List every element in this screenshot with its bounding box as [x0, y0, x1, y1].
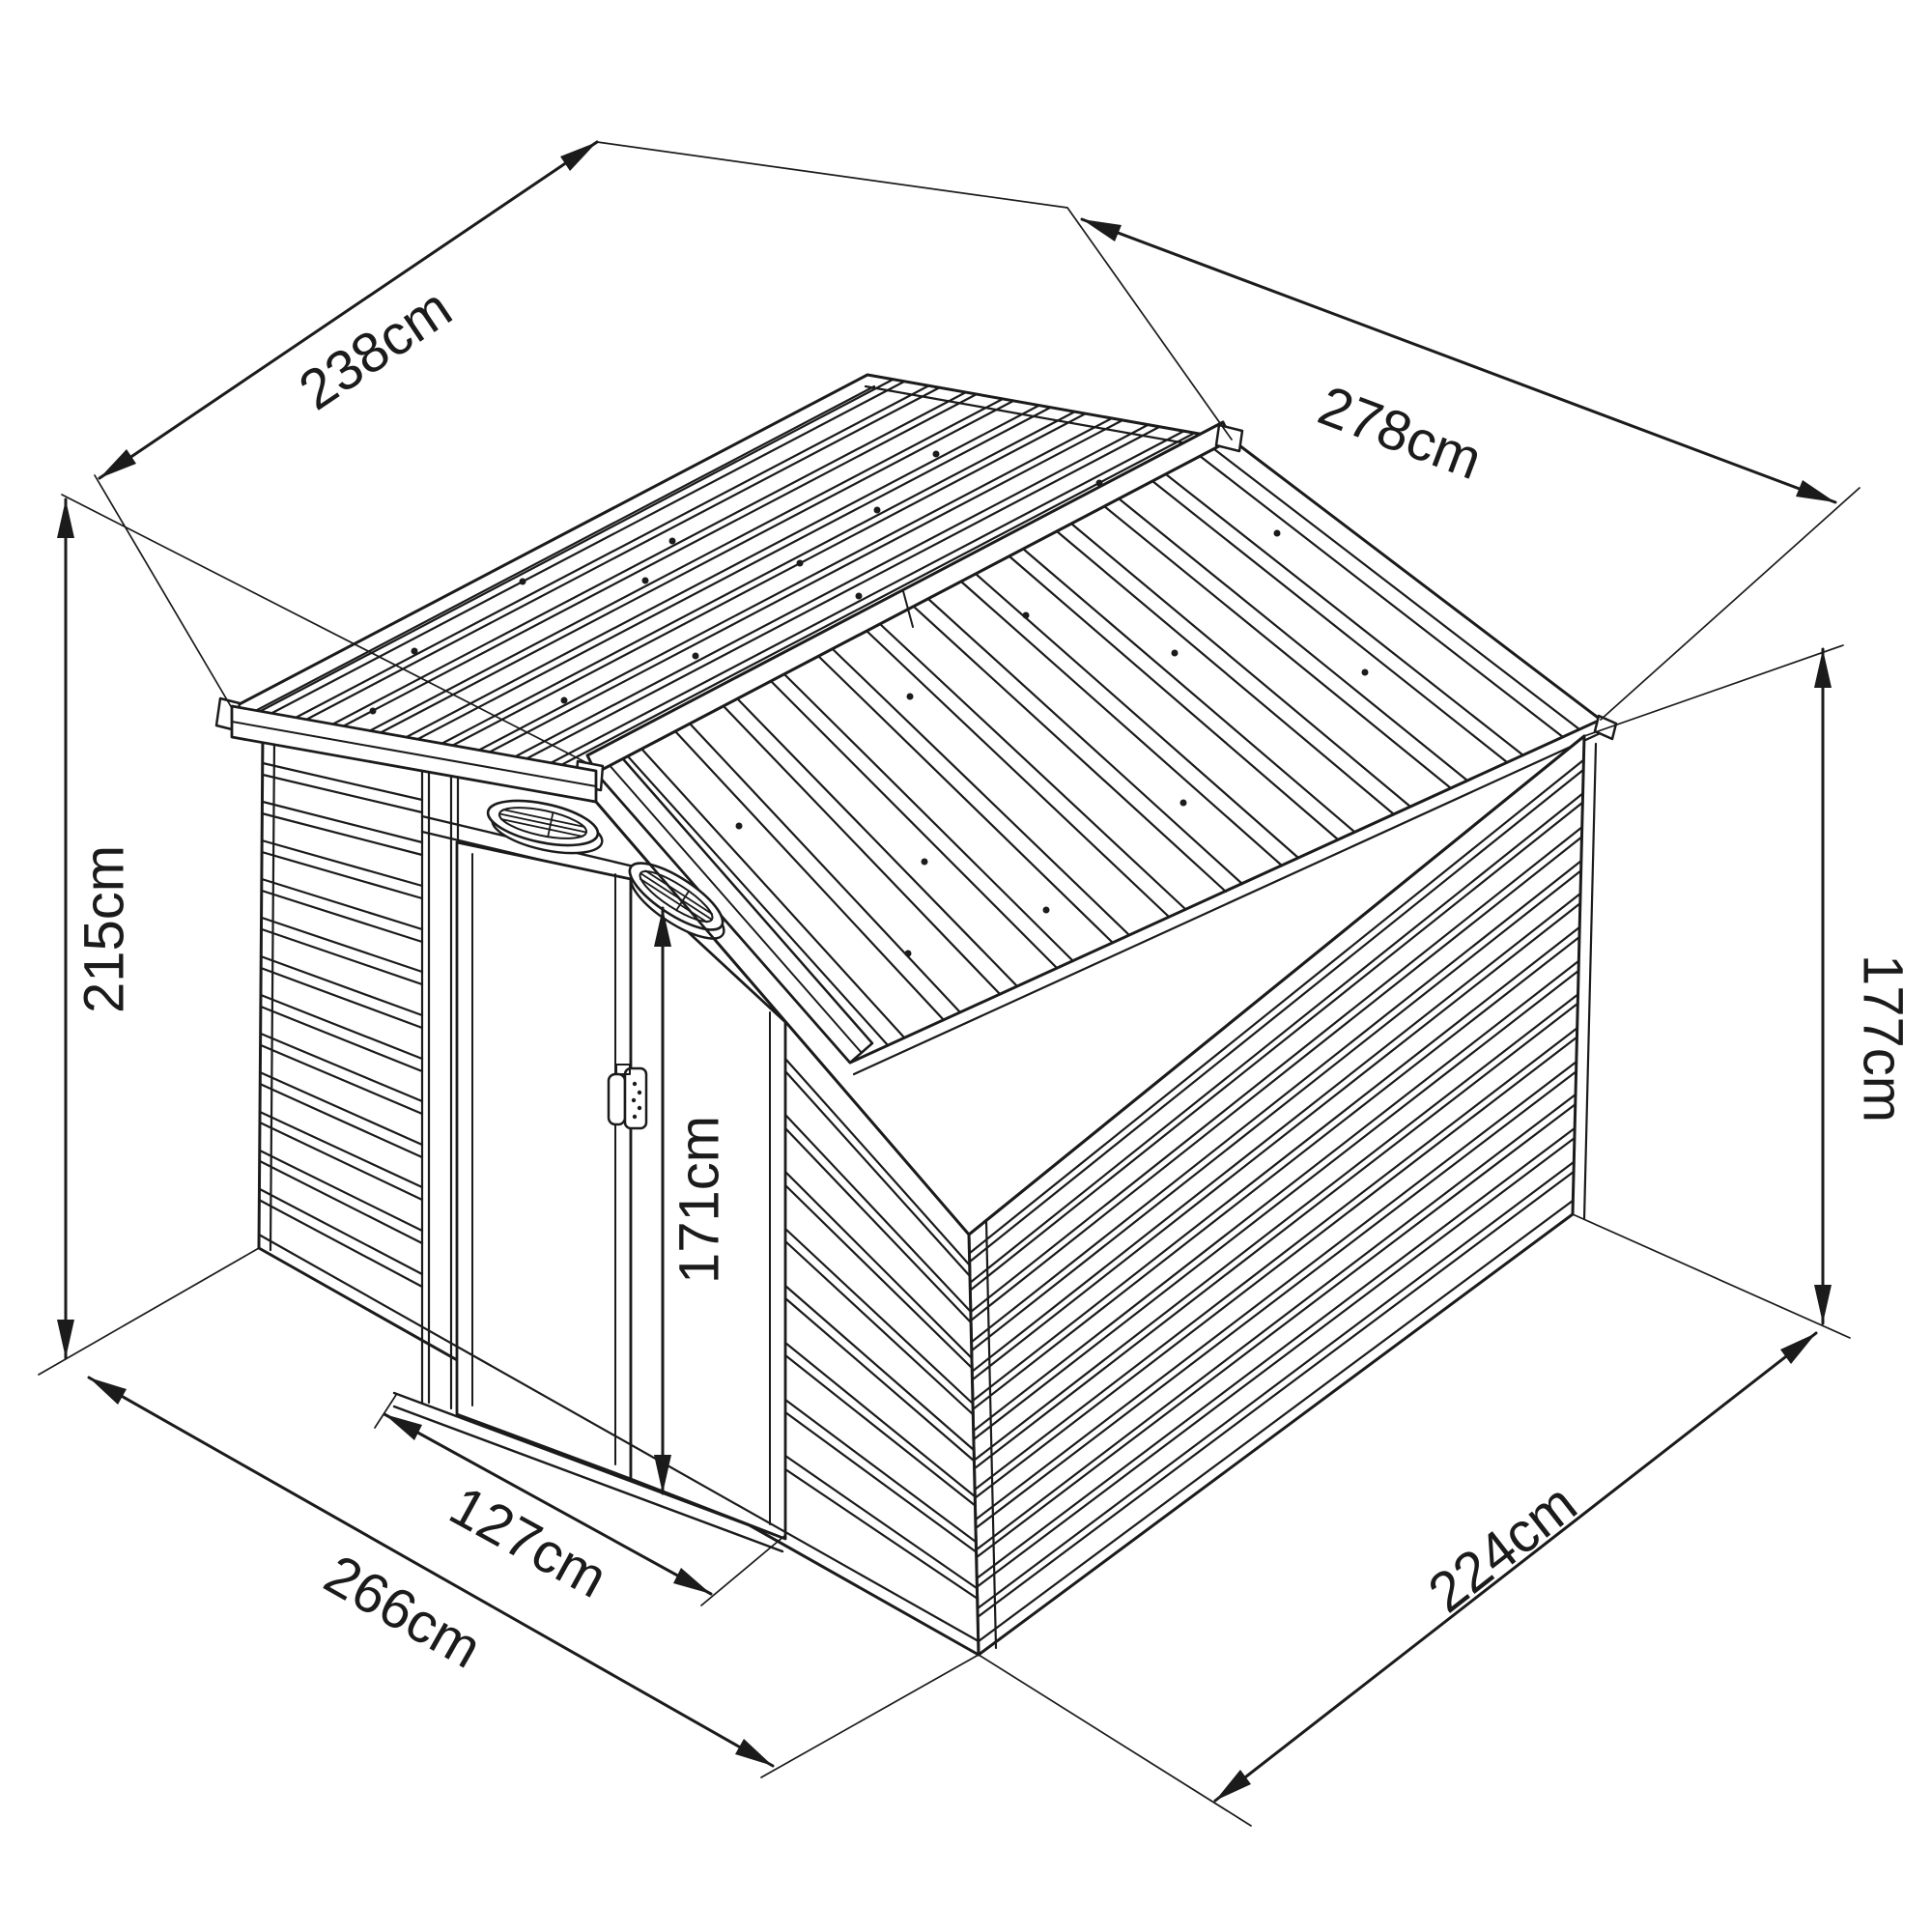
sliding-door-left: [457, 842, 631, 1479]
door-handle: [609, 1065, 646, 1128]
dimension-label-door-height: 171cm: [668, 1116, 730, 1284]
isometric-shed-drawing: 238cm 278cm 215cm 177cm 171cm 127cm 266c…: [0, 0, 1932, 1932]
ridge-back-end-cap: [1216, 425, 1242, 451]
shed-dimension-diagram: 238cm 278cm 215cm 177cm 171cm 127cm 266c…: [0, 0, 1932, 1932]
dimension-label-total-height: 215cm: [72, 845, 135, 1013]
dimension-label-wall-height: 177cm: [1852, 954, 1915, 1122]
